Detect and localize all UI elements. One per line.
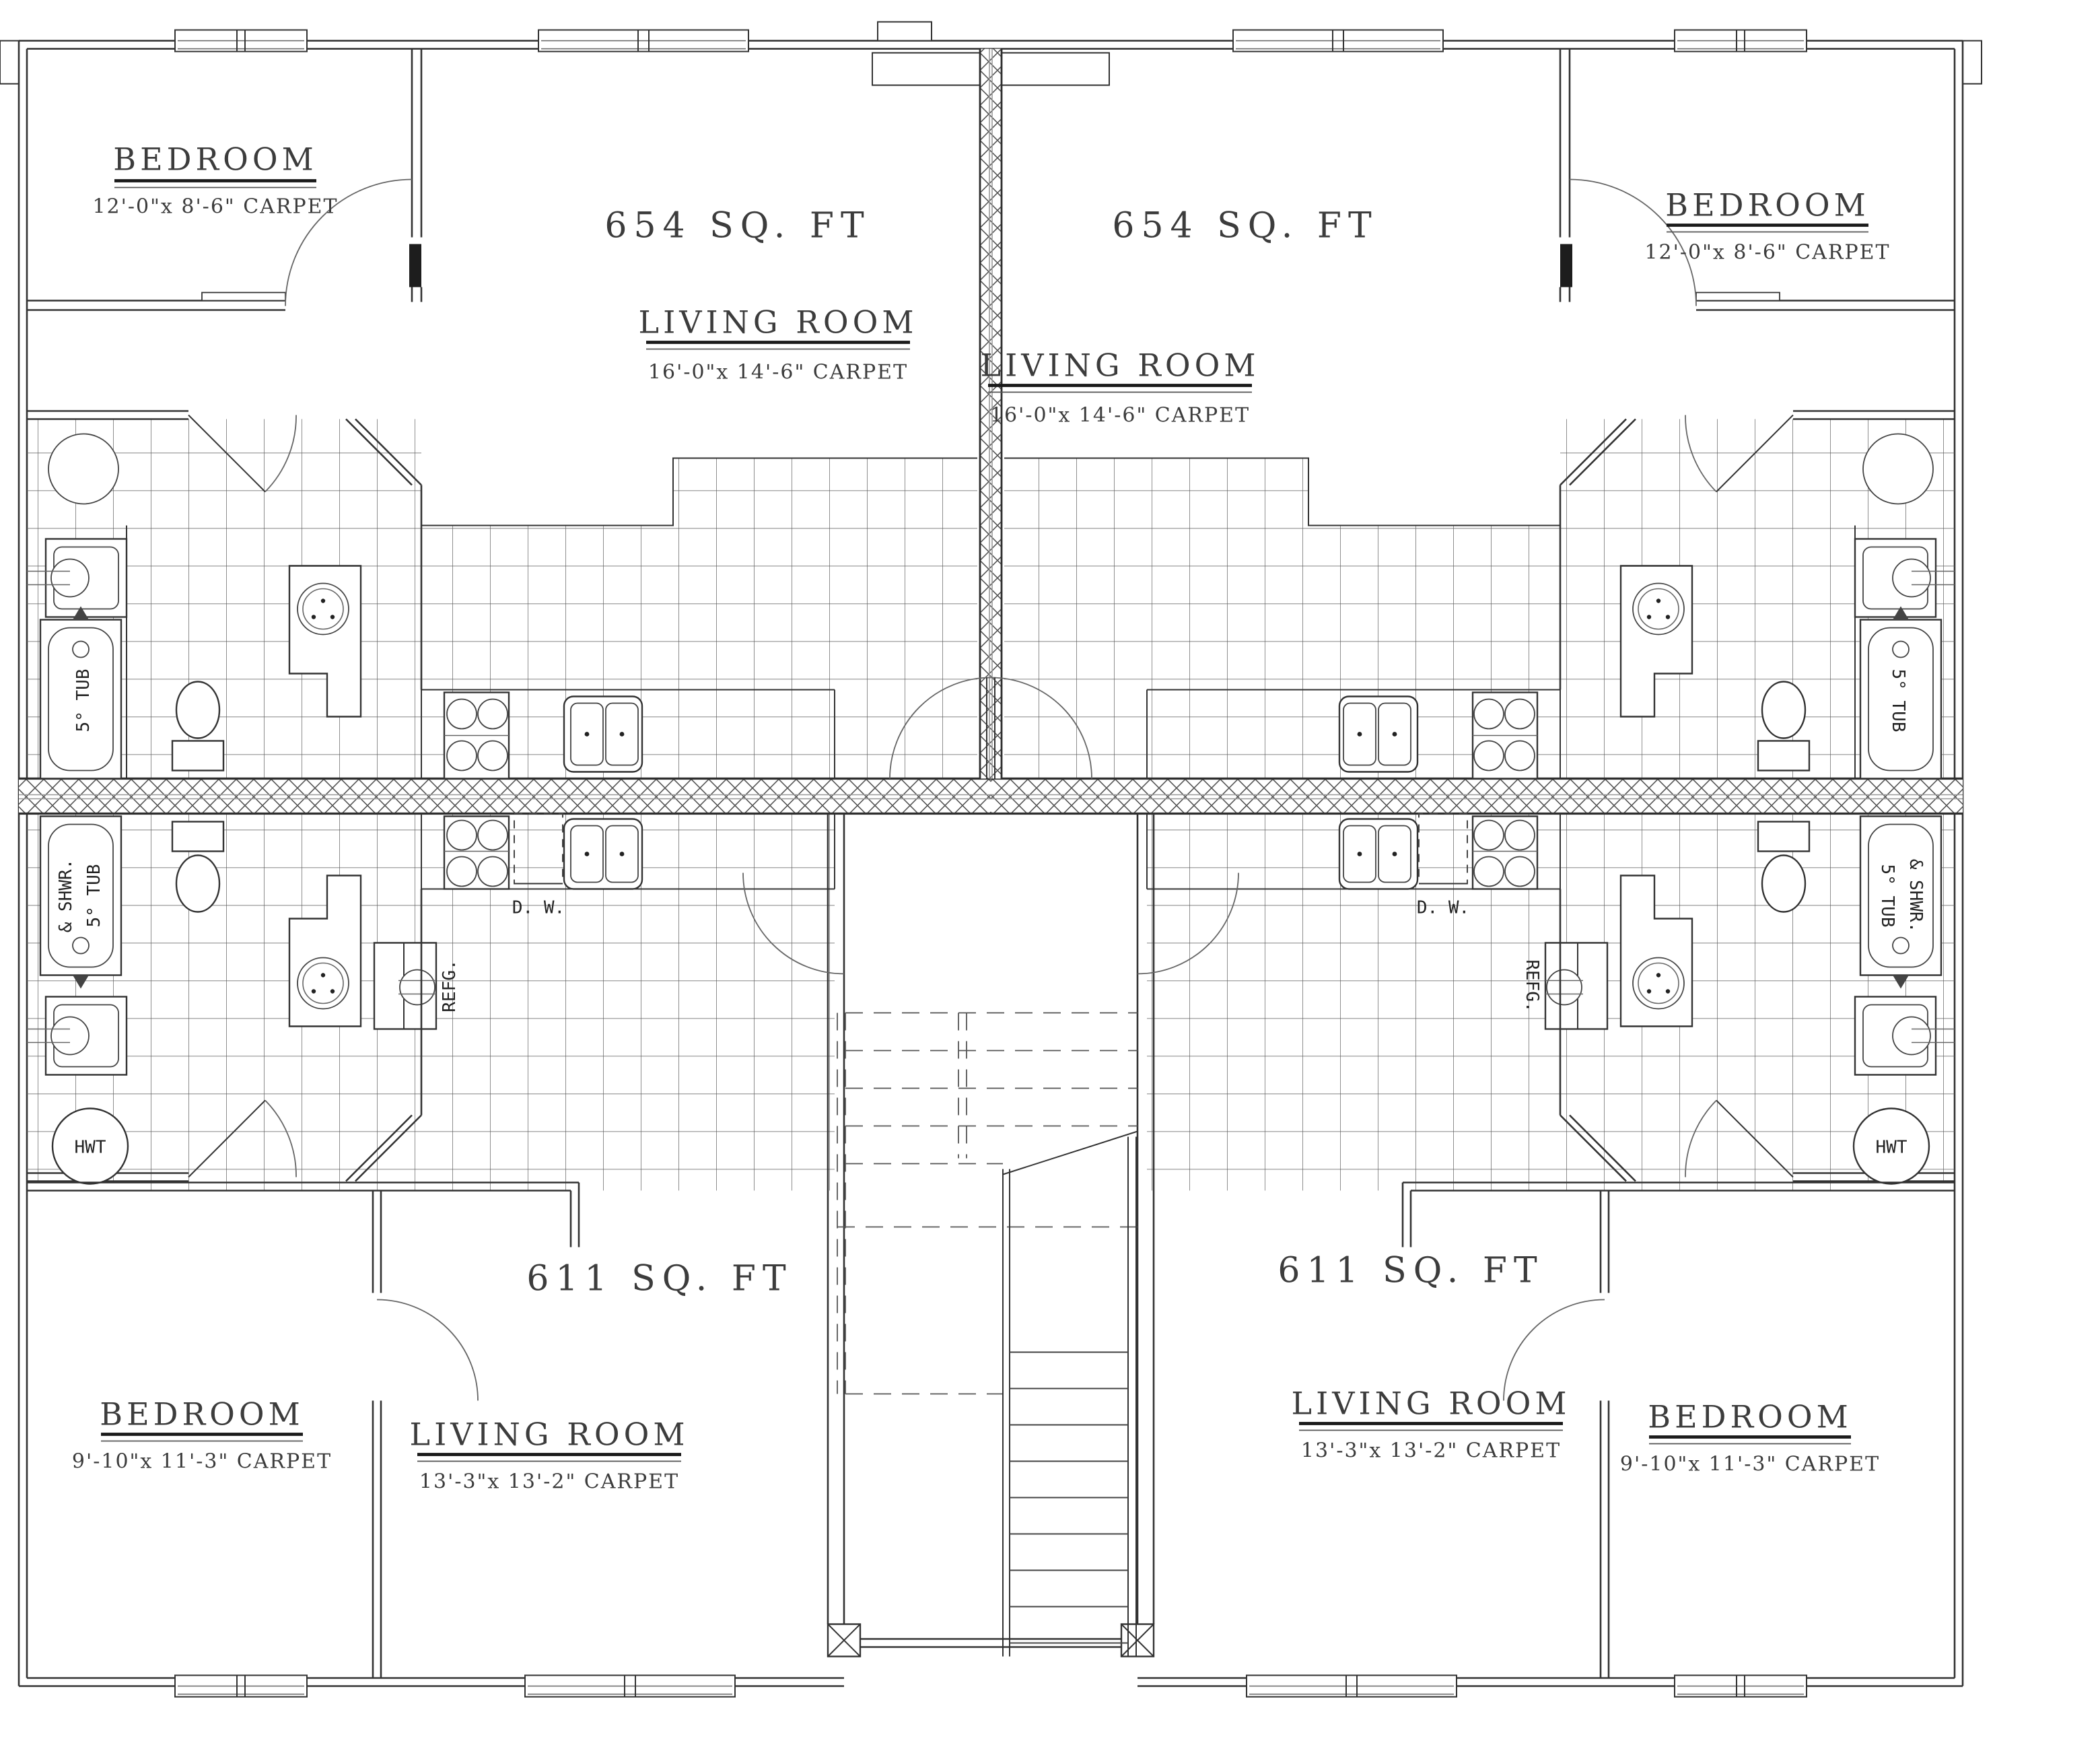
shower-label: & SHWR. — [56, 859, 76, 933]
room-title: LIVING ROOM — [1292, 1385, 1571, 1422]
water-heater-label: HWT — [75, 1138, 106, 1158]
tub-label: 5° TUB — [1888, 669, 1908, 732]
area-label: 611 SQ. FT — [526, 1259, 792, 1299]
area-label: 611 SQ. FT — [1277, 1251, 1543, 1291]
room-title: BEDROOM — [113, 141, 317, 178]
shower-label: & SHWR. — [1905, 859, 1926, 933]
room-title: BEDROOM — [100, 1396, 304, 1433]
stairwell — [837, 1013, 1137, 1657]
refrigerator-label: REFG. — [440, 959, 460, 1012]
room-dims: 12'-0"x 8'-6" CARPET — [92, 195, 338, 219]
room-title: LIVING ROOM — [639, 304, 918, 341]
room-title: BEDROOM — [1665, 187, 1869, 224]
room-title: LIVING ROOM — [981, 347, 1260, 384]
refrigerator-label: REFG. — [1522, 959, 1542, 1012]
room-dims: 12'-0"x 8'-6" CARPET — [1644, 241, 1890, 265]
break-line — [1003, 1132, 1137, 1175]
dishwasher-label: D. W. — [1417, 898, 1469, 918]
unit-label-upper-left: 654 SQ. FT BEDROOM 12'-0"x 8'-6" CARPET … — [92, 141, 917, 384]
unit-label-lower-right: 611 SQ. FT LIVING ROOM 13'-3"x 13'-2" CA… — [1277, 1251, 1880, 1476]
room-dims: 13'-3"x 13'-2" CARPET — [419, 1470, 679, 1494]
water-heater-label: HWT — [1876, 1138, 1908, 1158]
area-label: 654 SQ. FT — [604, 206, 870, 246]
room-dims: 9'-10"x 11'-3" CARPET — [72, 1450, 332, 1474]
tub-label: 5° TUB — [73, 669, 94, 732]
area-label: 654 SQ. FT — [1112, 206, 1378, 246]
room-dims: 9'-10"x 11'-3" CARPET — [1620, 1453, 1880, 1476]
tub-label: 5° TUB — [84, 864, 104, 928]
stairs-down — [1003, 1137, 1136, 1657]
tub-label: 5° TUB — [1877, 864, 1897, 928]
dishwasher-label: D. W. — [512, 898, 565, 918]
room-title: LIVING ROOM — [410, 1416, 689, 1453]
unit-label-lower-left: 611 SQ. FT BEDROOM 9'-10"x 11'-3" CARPET… — [72, 1259, 793, 1494]
unit-label-upper-right: 654 SQ. FT LIVING ROOM 16'-0"x 14'-6" CA… — [981, 187, 1891, 427]
room-dims: 16'-0"x 14'-6" CARPET — [990, 404, 1250, 427]
room-dims: 16'-0"x 14'-6" CARPET — [648, 361, 908, 384]
room-title: BEDROOM — [1648, 1399, 1852, 1435]
floor-plan-drawing: 654 SQ. FT BEDROOM 12'-0"x 8'-6" CARPET … — [0, 0, 2100, 1747]
room-dims: 13'-3"x 13'-2" CARPET — [1301, 1439, 1561, 1463]
chimney — [878, 22, 932, 41]
